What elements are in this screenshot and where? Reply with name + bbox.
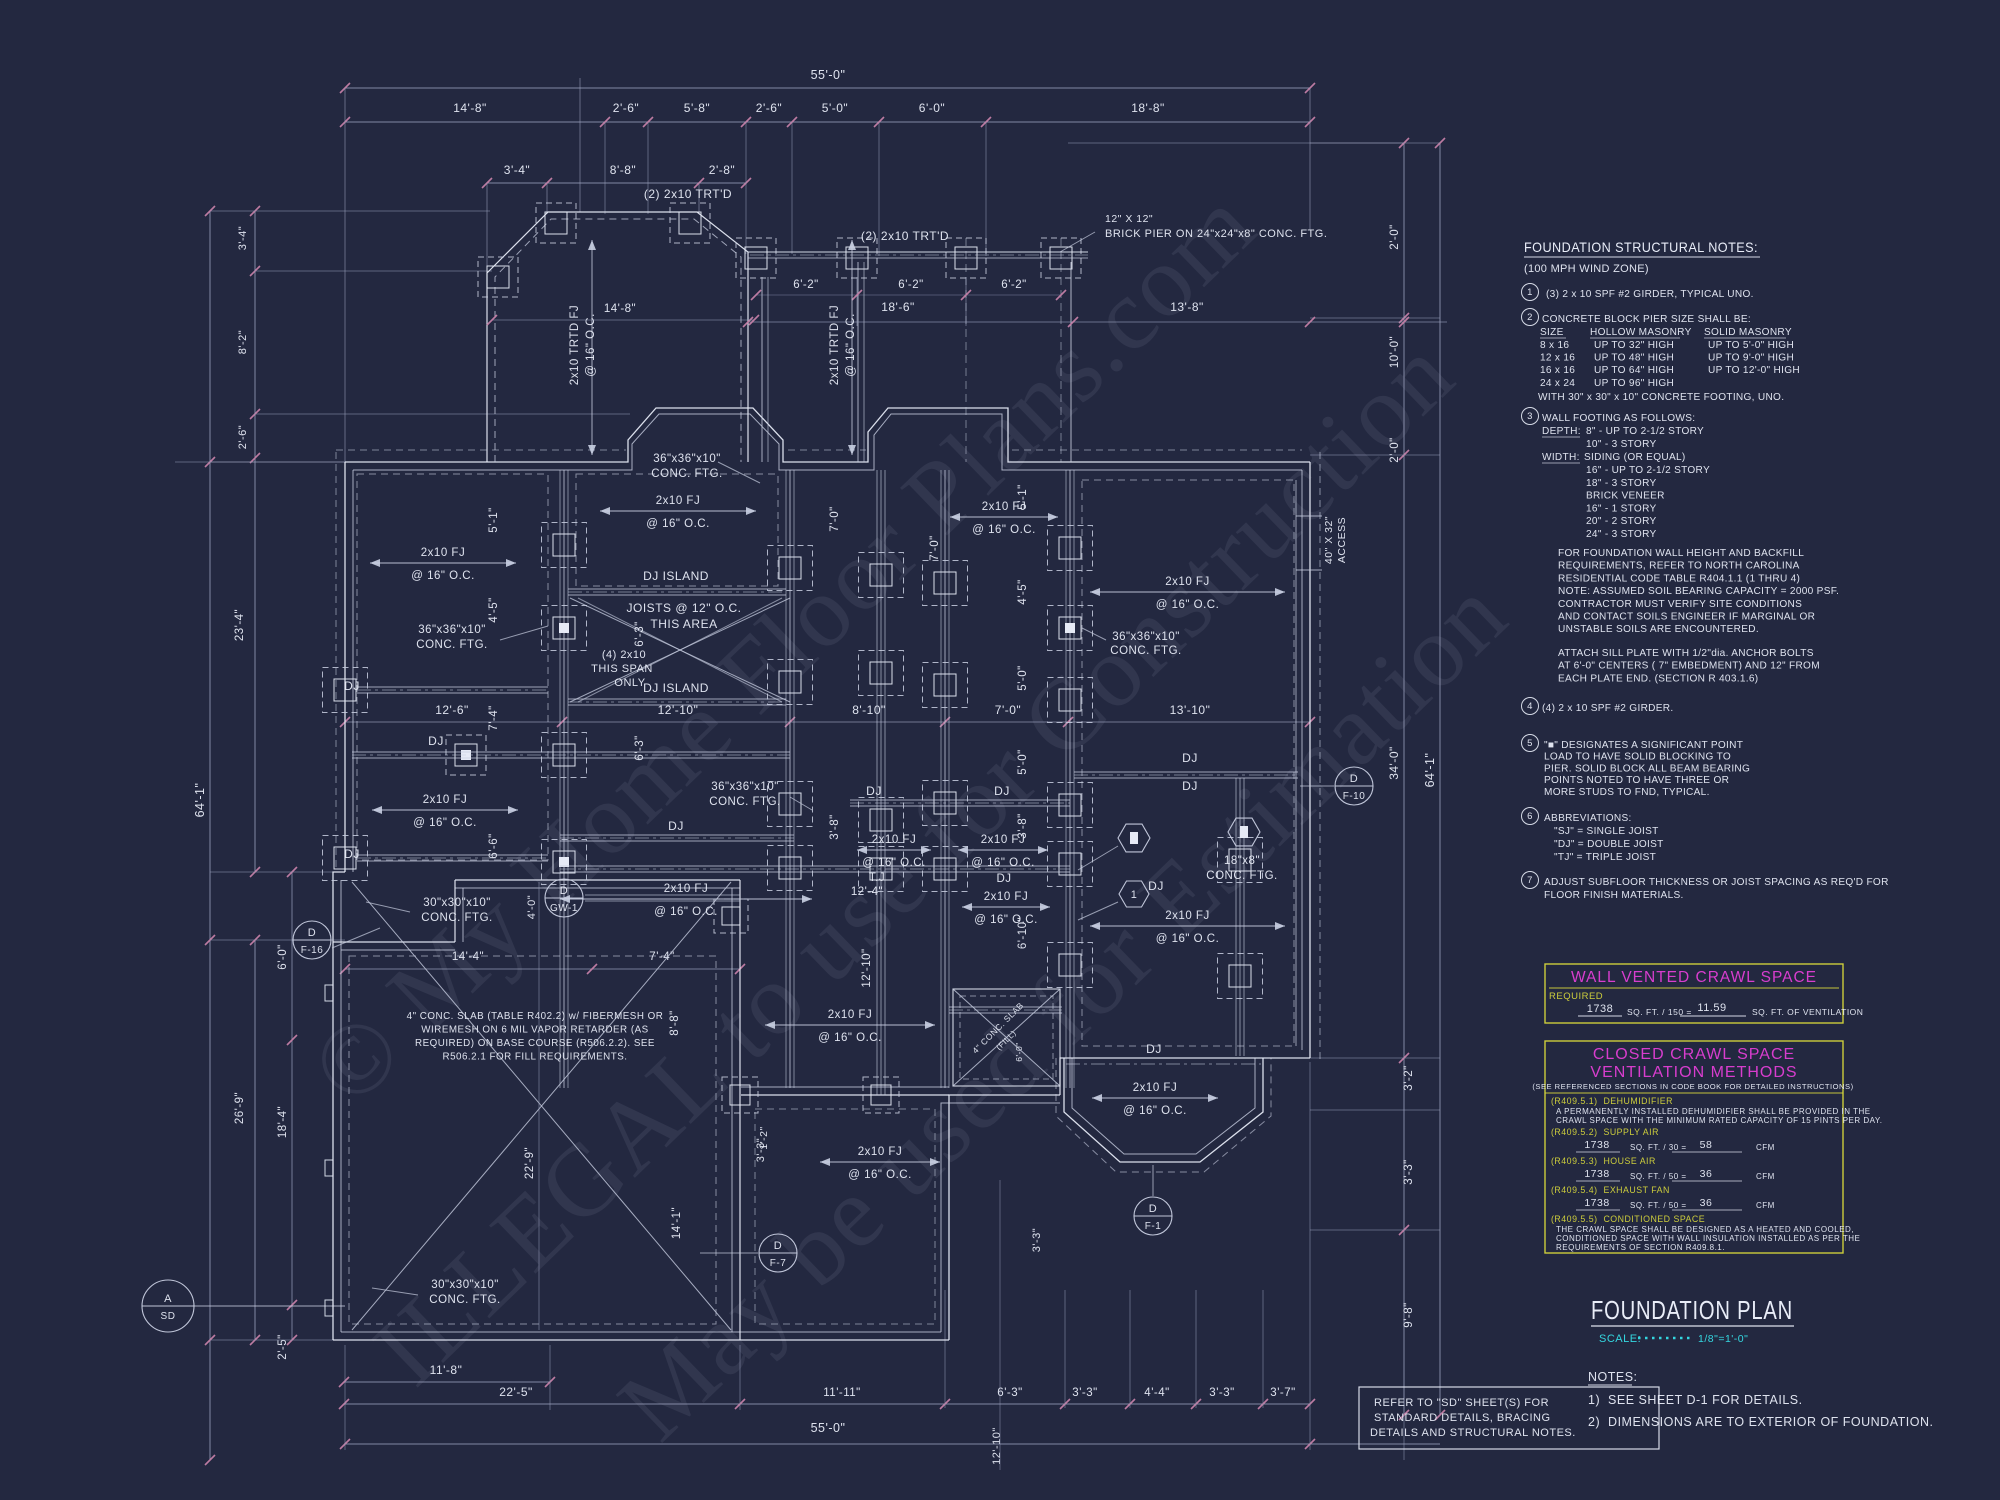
svg-text:5'-0": 5'-0" <box>1017 665 1029 690</box>
svg-text:2x10 FJ: 2x10 FJ <box>664 883 708 895</box>
svg-text:12" X 12": 12" X 12" <box>1105 213 1153 225</box>
svg-text:AND CONTACT SOILS ENGINEER IF: AND CONTACT SOILS ENGINEER IF MARGINAL O… <box>1558 612 1815 623</box>
svg-text:FLOOR FINISH MATERIALS.: FLOOR FINISH MATERIALS. <box>1544 890 1684 901</box>
svg-text:1/8"=1'-0": 1/8"=1'-0" <box>1698 1333 1748 1345</box>
svg-text:JOISTS @ 12" O.C.: JOISTS @ 12" O.C. <box>627 601 742 615</box>
svg-text:RESIDENTIAL CODE TABLE R404.1.: RESIDENTIAL CODE TABLE R404.1.1 (1 THRU … <box>1558 573 1800 584</box>
svg-text:"■" DESIGNATES A SIGNIFICANT P: "■" DESIGNATES A SIGNIFICANT POINT <box>1544 740 1743 751</box>
svg-text:26'-9": 26'-9" <box>234 1092 246 1124</box>
svg-text:DJ: DJ <box>866 784 882 798</box>
svg-text:DJ: DJ <box>668 819 684 833</box>
svg-text:DETAILS AND STRUCTURAL NOTES.: DETAILS AND STRUCTURAL NOTES. <box>1370 1427 1576 1439</box>
svg-text:WITH 30" x 30" x 10" CONCRETE: WITH 30" x 30" x 10" CONCRETE FOOTING, U… <box>1538 392 1784 403</box>
svg-text:BRICK PIER ON 24"x24"x8" CONC.: BRICK PIER ON 24"x24"x8" CONC. FTG. <box>1105 228 1327 240</box>
svg-text:DJ: DJ <box>344 847 360 861</box>
svg-text:4'-4": 4'-4" <box>1144 1387 1169 1399</box>
svg-text:11'-11": 11'-11" <box>823 1387 860 1399</box>
svg-text:CONC. FTG.: CONC. FTG. <box>421 912 492 924</box>
svg-text:58: 58 <box>1700 1139 1713 1151</box>
svg-text:1) SEE SHEET D-1 FOR DETAILS.: 1) SEE SHEET D-1 FOR DETAILS. <box>1588 1393 1803 1407</box>
svg-text:SQ. FT. OF VENTILATION: SQ. FT. OF VENTILATION <box>1752 1007 1863 1017</box>
svg-text:ONLY: ONLY <box>614 677 645 689</box>
svg-text:CFM: CFM <box>1756 1201 1775 1210</box>
svg-text:2x10 TRTD FJ: 2x10 TRTD FJ <box>569 305 581 385</box>
svg-text:12 x 16: 12 x 16 <box>1540 353 1575 364</box>
svg-text:6'-3": 6'-3" <box>997 1387 1022 1399</box>
svg-text:1738: 1738 <box>1584 1168 1609 1180</box>
svg-text:3'-8": 3'-8" <box>829 814 841 839</box>
svg-text:13'-8": 13'-8" <box>1170 300 1204 314</box>
svg-text:13'-10": 13'-10" <box>1170 703 1211 717</box>
svg-text:16 x 16: 16 x 16 <box>1540 365 1575 376</box>
svg-text:23'-4": 23'-4" <box>234 609 246 641</box>
svg-text:3: 3 <box>1527 411 1533 422</box>
svg-text:2x10 FJ: 2x10 FJ <box>858 1146 902 1158</box>
svg-text:18" - 3 STORY: 18" - 3 STORY <box>1586 478 1657 489</box>
svg-text:D: D <box>1149 1203 1157 1215</box>
svg-text:DEPTH:: DEPTH: <box>1542 426 1581 437</box>
svg-text:"DJ" = DOUBLE JOIST: "DJ" = DOUBLE JOIST <box>1554 839 1664 850</box>
svg-text:5'-8": 5'-8" <box>684 101 710 115</box>
svg-text:6'-0": 6'-0" <box>1014 1042 1024 1061</box>
svg-text:CRAWL SPACE WITH THE MINIMUM R: CRAWL SPACE WITH THE MINIMUM RATED CAPAC… <box>1556 1116 1882 1125</box>
svg-text:ADJUST SUBFLOOR THICKNESS OR J: ADJUST SUBFLOOR THICKNESS OR JOIST SPACI… <box>1544 877 1889 888</box>
svg-text:D: D <box>774 1240 782 1252</box>
svg-text:THIS SPAN: THIS SPAN <box>591 663 653 675</box>
svg-text:UP TO 64" HIGH: UP TO 64" HIGH <box>1594 365 1674 376</box>
svg-text:1738: 1738 <box>1584 1139 1609 1151</box>
svg-text:4'-5": 4'-5" <box>488 597 500 622</box>
svg-text:@ 16" O.C.: @ 16" O.C. <box>971 857 1035 869</box>
svg-text:3'-3": 3'-3" <box>1403 1159 1415 1184</box>
svg-text:SQ. FT. / 50 =: SQ. FT. / 50 = <box>1630 1201 1687 1210</box>
svg-text:20" - 2 STORY: 20" - 2 STORY <box>1586 516 1657 527</box>
svg-text:3'-8": 3'-8" <box>1017 813 1029 838</box>
svg-text:6: 6 <box>1527 811 1533 822</box>
svg-text:BRICK VENEER: BRICK VENEER <box>1586 491 1665 502</box>
svg-text:DJ: DJ <box>1148 879 1164 893</box>
svg-text:@ 16" O.C.: @ 16" O.C. <box>848 1169 912 1181</box>
svg-text:D: D <box>560 885 568 897</box>
svg-text:2x10 FJ: 2x10 FJ <box>1165 910 1209 922</box>
svg-text:(R409.5.1) DEHUMIDIFIER: (R409.5.1) DEHUMIDIFIER <box>1551 1096 1673 1106</box>
svg-text:STANDARD DETAILS, BRACING: STANDARD DETAILS, BRACING <box>1374 1412 1551 1424</box>
svg-text:2x10 FJ: 2x10 FJ <box>984 891 1028 903</box>
svg-text:REQUIREMENTS, REFER TO NORTH C: REQUIREMENTS, REFER TO NORTH CAROLINA <box>1558 561 1800 572</box>
svg-text:16" - 1 STORY: 16" - 1 STORY <box>1586 503 1657 514</box>
svg-text:@ 16" O.C.: @ 16" O.C. <box>411 570 475 582</box>
svg-text:ATTACH SILL PLATE WITH 1/2"dia: ATTACH SILL PLATE WITH 1/2"dia. ANCHOR B… <box>1558 648 1814 659</box>
svg-text:@ 16" O.C.: @ 16" O.C. <box>818 1032 882 1044</box>
svg-text:6'-10": 6'-10" <box>1017 917 1029 949</box>
svg-text:5'-0": 5'-0" <box>1017 749 1029 774</box>
svg-text:PIER. SOLID BLOCK ALL BEAM BEA: PIER. SOLID BLOCK ALL BEAM BEARING <box>1544 763 1750 774</box>
svg-text:(2) 2x10 TRT'D: (2) 2x10 TRT'D <box>644 187 732 201</box>
svg-text:CONCRETE BLOCK PIER SIZE SHALL: CONCRETE BLOCK PIER SIZE SHALL BE: <box>1542 314 1751 325</box>
svg-text:(R409.5.5) CONDITIONED SPACE: (R409.5.5) CONDITIONED SPACE <box>1551 1214 1705 1224</box>
svg-text:8'-8": 8'-8" <box>669 1010 681 1035</box>
svg-text:@ 16" O.C.: @ 16" O.C. <box>972 524 1036 536</box>
svg-text:10" - 3 STORY: 10" - 3 STORY <box>1586 439 1657 450</box>
svg-text:14'-4": 14'-4" <box>452 951 484 963</box>
svg-text:22'-9": 22'-9" <box>524 1147 536 1179</box>
svg-text:30"x30"x10": 30"x30"x10" <box>423 897 491 909</box>
svg-text:@ 16" O.C.: @ 16" O.C. <box>1156 933 1220 945</box>
svg-text:7'-0": 7'-0" <box>829 506 841 531</box>
svg-text:2x10 FJ: 2x10 FJ <box>656 495 700 507</box>
svg-text:11'-8": 11'-8" <box>430 1363 463 1377</box>
svg-text:FOUNDATION STRUCTURAL NOTES:: FOUNDATION STRUCTURAL NOTES: <box>1524 239 1758 255</box>
svg-text:ACCESS: ACCESS <box>1336 517 1348 563</box>
svg-text:(4) 2 x 10 SPF #2 GIRDER.: (4) 2 x 10 SPF #2 GIRDER. <box>1542 703 1673 714</box>
svg-text:D: D <box>1350 773 1358 785</box>
svg-text:36"x36"x10": 36"x36"x10" <box>653 453 721 465</box>
svg-text:T.J: T.J <box>869 872 885 884</box>
svg-text:36: 36 <box>1700 1197 1713 1209</box>
svg-text:12'-4": 12'-4" <box>851 886 883 898</box>
svg-text:D: D <box>308 927 316 939</box>
svg-text:@ 16" O.C.: @ 16" O.C. <box>1156 599 1220 611</box>
svg-text:UP TO 32" HIGH: UP TO 32" HIGH <box>1594 340 1674 351</box>
svg-text:7'-4": 7'-4" <box>488 705 500 730</box>
svg-text:THE CRAWL SPACE SHALL BE DESIG: THE CRAWL SPACE SHALL BE DESIGNED AS A H… <box>1556 1225 1854 1234</box>
svg-text:36: 36 <box>1700 1168 1713 1180</box>
svg-text:DJ: DJ <box>1146 1042 1162 1056</box>
svg-text:@ 16" O.C.: @ 16" O.C. <box>845 313 857 377</box>
svg-text:SQ. FT. / 30 =: SQ. FT. / 30 = <box>1630 1143 1687 1152</box>
svg-text:18'-4": 18'-4" <box>277 1106 289 1138</box>
svg-text:CFM: CFM <box>1756 1172 1775 1181</box>
svg-text:UNSTABLE SOILS ARE ENCOUNTERED: UNSTABLE SOILS ARE ENCOUNTERED. <box>1558 624 1759 635</box>
svg-text:36"x36"x10": 36"x36"x10" <box>1112 631 1180 643</box>
svg-text:4'-0": 4'-0" <box>526 895 538 919</box>
svg-text:2x10 FJ: 2x10 FJ <box>872 834 916 846</box>
svg-text:WALL VENTED CRAWL SPACE: WALL VENTED CRAWL SPACE <box>1571 969 1817 986</box>
svg-text:3'-2": 3'-2" <box>1403 1065 1415 1090</box>
svg-text:DJ ISLAND: DJ ISLAND <box>643 569 709 583</box>
svg-text:2x10 FJ: 2x10 FJ <box>828 1009 872 1021</box>
svg-text:DJ: DJ <box>1182 751 1198 765</box>
svg-text:GW-1: GW-1 <box>550 903 578 914</box>
svg-text:1738: 1738 <box>1584 1197 1609 1209</box>
svg-text:3'-3": 3'-3" <box>1072 1387 1097 1399</box>
svg-text:22'-5": 22'-5" <box>499 1385 533 1399</box>
svg-text:SOLID MASONRY: SOLID MASONRY <box>1704 327 1792 338</box>
svg-text:SCALE:: SCALE: <box>1599 1333 1641 1345</box>
svg-text:SQ. FT. / 50 =: SQ. FT. / 50 = <box>1630 1172 1687 1181</box>
svg-text:HOLLOW MASONRY: HOLLOW MASONRY <box>1590 327 1692 338</box>
svg-text:@ 16" O.C.: @ 16" O.C. <box>654 906 718 918</box>
svg-text:9'-8": 9'-8" <box>1403 1302 1415 1327</box>
svg-text:2'-6": 2'-6" <box>613 101 639 115</box>
svg-text:SD: SD <box>161 1311 176 1322</box>
svg-text:18'-6": 18'-6" <box>881 300 915 314</box>
svg-text:POINTS NOTED TO HAVE THREE OR: POINTS NOTED TO HAVE THREE OR <box>1544 775 1729 786</box>
svg-text:VENTILATION METHODS: VENTILATION METHODS <box>1590 1064 1797 1081</box>
svg-text:DJ: DJ <box>428 734 444 748</box>
svg-text:4: 4 <box>1527 701 1533 712</box>
svg-text:(4) 2x10: (4) 2x10 <box>602 649 646 661</box>
svg-text:CONC. FTG.: CONC. FTG. <box>416 639 487 651</box>
svg-text:2x10 FJ: 2x10 FJ <box>423 794 467 806</box>
svg-text:THIS AREA: THIS AREA <box>650 617 717 631</box>
svg-text:2'-5": 2'-5" <box>277 1334 289 1359</box>
svg-text:CONC. FTG.: CONC. FTG. <box>651 468 722 480</box>
svg-text:6'-3": 6'-3" <box>634 621 646 646</box>
svg-text:40" X 32": 40" X 32" <box>1323 516 1335 564</box>
svg-text:CLOSED CRAWL SPACE: CLOSED CRAWL SPACE <box>1593 1046 1795 1063</box>
svg-text:18'-8": 18'-8" <box>1131 101 1165 115</box>
svg-text:DJ: DJ <box>996 873 1011 885</box>
svg-text:CONC. FTG.: CONC. FTG. <box>1206 870 1277 882</box>
svg-text:@ 16" O.C.: @ 16" O.C. <box>1123 1105 1187 1117</box>
svg-text:MORE STUDS TO FND, TYPICAL.: MORE STUDS TO FND, TYPICAL. <box>1544 787 1710 798</box>
svg-text:2'-8": 2'-8" <box>709 163 735 177</box>
svg-text:UP TO 12'-0" HIGH: UP TO 12'-0" HIGH <box>1708 365 1800 376</box>
svg-text:1: 1 <box>1527 287 1533 298</box>
svg-text:1738: 1738 <box>1587 1003 1613 1015</box>
svg-text:4'-5": 4'-5" <box>1017 579 1029 604</box>
svg-text:5'-1": 5'-1" <box>488 507 500 532</box>
svg-text:FOR FOUNDATION WALL HEIGHT AND: FOR FOUNDATION WALL HEIGHT AND BACKFILL <box>1558 548 1804 559</box>
svg-text:AT 6'-0" CENTERS ( 7" EMBEDMEN: AT 6'-0" CENTERS ( 7" EMBEDMENT) AND 12"… <box>1558 661 1820 672</box>
svg-text:64'-1": 64'-1" <box>1423 753 1437 788</box>
svg-text:14'-8": 14'-8" <box>604 303 636 315</box>
svg-text:6'-2": 6'-2" <box>898 279 923 291</box>
svg-text:FOUNDATION PLAN: FOUNDATION PLAN <box>1591 1295 1793 1325</box>
svg-text:2) DIMENSIONS ARE TO EXTERIOR: 2) DIMENSIONS ARE TO EXTERIOR OF FOUNDAT… <box>1588 1415 1933 1429</box>
svg-text:CONDITIONED SPACE WITH WALL IN: CONDITIONED SPACE WITH WALL INSULATION I… <box>1556 1234 1860 1243</box>
svg-text:2x10 TRTD FJ: 2x10 TRTD FJ <box>829 305 841 385</box>
svg-text:24" - 3 STORY: 24" - 3 STORY <box>1586 529 1657 540</box>
svg-text:14'-8": 14'-8" <box>453 101 487 115</box>
svg-text:2x10 FJ: 2x10 FJ <box>421 547 465 559</box>
svg-text:WIREMESH ON 6 MIL VAPOR RETARD: WIREMESH ON 6 MIL VAPOR RETARDER (AS <box>421 1025 648 1036</box>
svg-text:SIZE: SIZE <box>1540 327 1564 338</box>
svg-text:(SEE REFERENCED SECTIONS IN CO: (SEE REFERENCED SECTIONS IN CODE BOOK FO… <box>1532 1082 1853 1091</box>
svg-text:DJ: DJ <box>994 784 1010 798</box>
svg-text:2x10 FJ: 2x10 FJ <box>1133 1082 1177 1094</box>
svg-text:EACH PLATE END. (SECTION R 403: EACH PLATE END. (SECTION R 403.1.6) <box>1558 673 1758 684</box>
svg-text:14'-1": 14'-1" <box>671 1207 683 1239</box>
svg-text:@ 16" O.C.: @ 16" O.C. <box>862 857 926 869</box>
svg-text:3'-3": 3'-3" <box>1031 1228 1043 1252</box>
svg-text:CONC. FTG.: CONC. FTG. <box>709 796 780 808</box>
svg-text:36"x36"x10": 36"x36"x10" <box>711 781 779 793</box>
svg-text:18"x8": 18"x8" <box>1224 855 1260 867</box>
svg-text:DJ ISLAND: DJ ISLAND <box>643 681 709 695</box>
svg-text:SIDING (OR EQUAL): SIDING (OR EQUAL) <box>1584 452 1686 463</box>
svg-text:12'-10": 12'-10" <box>861 948 873 987</box>
svg-text:6'-6": 6'-6" <box>488 833 500 858</box>
svg-text:A: A <box>164 1293 172 1305</box>
svg-text:11.59: 11.59 <box>1697 1002 1726 1014</box>
svg-text:8 x 16: 8 x 16 <box>1540 340 1569 351</box>
svg-text:6'-3": 6'-3" <box>634 735 646 760</box>
svg-text:@ 16" O.C.: @ 16" O.C. <box>646 518 710 530</box>
svg-text:7'-0": 7'-0" <box>929 535 941 560</box>
svg-text:A PERMANENTLY INSTALLED DEHUMI: A PERMANENTLY INSTALLED DEHUMIDIFIER SHA… <box>1556 1107 1871 1116</box>
svg-text:@ 16" O.C.: @ 16" O.C. <box>413 817 477 829</box>
svg-text:F-16: F-16 <box>301 945 324 956</box>
svg-text:DJ: DJ <box>344 679 360 693</box>
svg-text:2x10 FJ: 2x10 FJ <box>1165 576 1209 588</box>
svg-text:LOAD TO HAVE SOLID BLOCKING TO: LOAD TO HAVE SOLID BLOCKING TO <box>1544 752 1731 763</box>
svg-text:UP TO 96" HIGH: UP TO 96" HIGH <box>1594 378 1674 389</box>
svg-text:(100 MPH WIND ZONE): (100 MPH WIND ZONE) <box>1524 263 1649 275</box>
svg-text:8" - UP TO 2-1/2 STORY: 8" - UP TO 2-1/2 STORY <box>1586 426 1704 437</box>
svg-text:"SJ" = SINGLE JOIST: "SJ" = SINGLE JOIST <box>1554 826 1659 837</box>
svg-text:F-7: F-7 <box>770 1258 787 1269</box>
svg-text:(2) 2x10 TRT'D: (2) 2x10 TRT'D <box>861 229 949 243</box>
svg-text:2: 2 <box>1527 312 1533 323</box>
svg-text:NOTES:: NOTES: <box>1588 1370 1638 1384</box>
svg-text:5'-0": 5'-0" <box>822 101 848 115</box>
svg-text:WALL FOOTING AS FOLLOWS:: WALL FOOTING AS FOLLOWS: <box>1542 413 1695 424</box>
svg-text:1: 1 <box>1131 889 1138 901</box>
svg-text:16" - UP TO 2-1/2 STORY: 16" - UP TO 2-1/2 STORY <box>1586 465 1710 476</box>
svg-text:55'-0": 55'-0" <box>811 68 846 82</box>
svg-text:2'-6": 2'-6" <box>237 425 249 449</box>
svg-text:UP TO 5'-0" HIGH: UP TO 5'-0" HIGH <box>1708 340 1794 351</box>
svg-text:12'-10": 12'-10" <box>991 1427 1003 1465</box>
svg-text:3'-3": 3'-3" <box>755 1138 767 1162</box>
svg-text:REQUIRED) ON BASE COURSE (R506: REQUIRED) ON BASE COURSE (R506.2.2). SEE <box>415 1038 655 1049</box>
svg-text:34'-0": 34'-0" <box>1387 746 1401 780</box>
svg-text:WIDTH:: WIDTH: <box>1542 452 1580 463</box>
svg-text:CONC. FTG.: CONC. FTG. <box>1110 645 1181 657</box>
svg-text:ABBREVIATIONS:: ABBREVIATIONS: <box>1544 813 1632 824</box>
svg-text:R506.2.1 FOR FILL REQUIREMENTS: R506.2.1 FOR FILL REQUIREMENTS. <box>443 1052 628 1063</box>
svg-text:UP TO 9'-0" HIGH: UP TO 9'-0" HIGH <box>1708 353 1794 364</box>
svg-text:3'-4": 3'-4" <box>237 226 249 250</box>
svg-text:NOTE: ASSUMED SOIL BEARING CAP: NOTE: ASSUMED SOIL BEARING CAPACITY = 20… <box>1558 586 1839 597</box>
svg-text:UP TO 48" HIGH: UP TO 48" HIGH <box>1594 353 1674 364</box>
svg-text:36"x36"x10": 36"x36"x10" <box>418 624 486 636</box>
svg-text:64'-1": 64'-1" <box>193 783 207 818</box>
svg-text:7'-0": 7'-0" <box>995 703 1021 717</box>
svg-text:REFER TO "SD" SHEET(S) FOR: REFER TO "SD" SHEET(S) FOR <box>1374 1397 1549 1409</box>
svg-text:@ 16" O.C.: @ 16" O.C. <box>585 313 597 377</box>
svg-text:4" CONC. SLAB (TABLE R402.2) w: 4" CONC. SLAB (TABLE R402.2) w/ FIBERMES… <box>407 1011 664 1022</box>
svg-text:10'-0": 10'-0" <box>1389 336 1401 368</box>
svg-text:30"x30"x10": 30"x30"x10" <box>431 1279 499 1291</box>
svg-text:6'-2": 6'-2" <box>793 279 818 291</box>
svg-text:F-10: F-10 <box>1343 791 1366 802</box>
svg-text:5'-1": 5'-1" <box>1017 484 1029 509</box>
svg-text:7: 7 <box>1527 875 1533 886</box>
svg-text:(R409.5.4) EXHAUST FAN: (R409.5.4) EXHAUST FAN <box>1551 1185 1670 1195</box>
svg-text:3'-4": 3'-4" <box>504 163 530 177</box>
svg-text:CONTRACTOR MUST VERIFY SITE CO: CONTRACTOR MUST VERIFY SITE CONDITIONS <box>1558 599 1802 610</box>
svg-text:24 x 24: 24 x 24 <box>1540 378 1575 389</box>
svg-text:DJ: DJ <box>1182 779 1198 793</box>
svg-text:8'-8": 8'-8" <box>610 163 636 177</box>
svg-text:12'-6": 12'-6" <box>435 703 469 717</box>
svg-text:REQUIREMENTS OF SECTION R409.8: REQUIREMENTS OF SECTION R409.8.1. <box>1556 1243 1725 1252</box>
svg-text:3'-7": 3'-7" <box>1270 1387 1295 1399</box>
svg-text:"TJ" = TRIPLE JOIST: "TJ" = TRIPLE JOIST <box>1554 852 1656 863</box>
svg-text:(R409.5.2) SUPPLY AIR: (R409.5.2) SUPPLY AIR <box>1551 1127 1659 1137</box>
svg-text:CFM: CFM <box>1756 1143 1775 1152</box>
svg-text:6'-2": 6'-2" <box>1001 279 1026 291</box>
svg-text:F-1: F-1 <box>1145 1221 1162 1232</box>
svg-text:6'-0": 6'-0" <box>919 101 945 115</box>
svg-text:6'-0": 6'-0" <box>277 944 289 969</box>
svg-text:SQ. FT. / 150 =: SQ. FT. / 150 = <box>1627 1007 1692 1017</box>
svg-text:REQUIRED: REQUIRED <box>1549 991 1603 1002</box>
svg-text:5: 5 <box>1527 738 1533 749</box>
svg-text:2'-6": 2'-6" <box>756 101 782 115</box>
svg-text:2'-0": 2'-0" <box>1389 224 1401 249</box>
svg-text:(R409.5.3) HOUSE AIR: (R409.5.3) HOUSE AIR <box>1551 1156 1656 1166</box>
svg-text:(3) 2 x 10 SPF #2 GIRDER, TYPI: (3) 2 x 10 SPF #2 GIRDER, TYPICAL UNO. <box>1546 289 1754 300</box>
svg-text:55'-0": 55'-0" <box>811 1421 846 1435</box>
svg-text:3'-3": 3'-3" <box>1209 1387 1234 1399</box>
svg-text:CONC. FTG.: CONC. FTG. <box>429 1294 500 1306</box>
svg-text:8'-2": 8'-2" <box>237 330 249 354</box>
